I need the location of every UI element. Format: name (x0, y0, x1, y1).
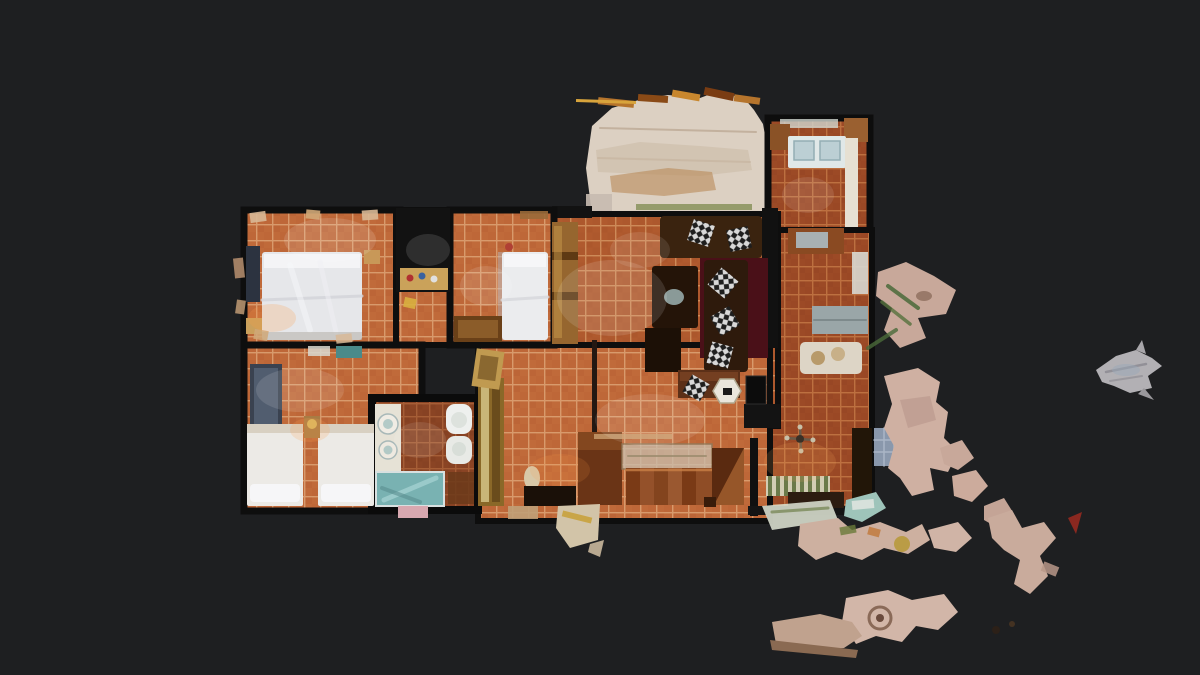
dark-speck (1009, 621, 1015, 627)
fragment-spiral-core (876, 614, 884, 622)
wood-debris (306, 209, 321, 219)
stair-step (640, 468, 654, 505)
wardrobe-panel (492, 382, 500, 502)
stair-step (654, 468, 668, 505)
kitchen-floor-glow (782, 177, 834, 213)
fragment-blue-tint (1112, 364, 1140, 376)
ceiling-light-glow (460, 266, 512, 306)
kitchen-sink-basin (820, 141, 840, 160)
door-wood (520, 211, 548, 219)
dining-counter-steel (796, 232, 828, 248)
hex-table-center (723, 388, 732, 395)
ceiling-light-glow (595, 394, 705, 446)
tv-unit (746, 376, 766, 404)
fragment-white-bit (852, 499, 875, 510)
kitchen-cabinet (770, 124, 790, 150)
stair-step (682, 468, 696, 505)
wood-debris (336, 333, 353, 344)
bath-sink-bowl (384, 446, 393, 455)
cushion (726, 226, 752, 252)
kitchen-sink-basin (794, 141, 814, 160)
fridge (852, 252, 868, 294)
fragment-gold-dot (894, 536, 910, 552)
hall-chair-seat (477, 355, 498, 381)
lamp-glow (530, 454, 590, 486)
chandelier-glass (811, 438, 816, 443)
wall-living-notch (744, 404, 780, 428)
bed-pillow (250, 484, 300, 502)
white-table (800, 342, 862, 374)
bath-door (448, 472, 474, 504)
terrace-hedge (636, 204, 752, 210)
bowl (831, 347, 845, 361)
bowl (811, 351, 825, 365)
ceiling-light-glow (406, 234, 450, 266)
bath-sink-bowl (383, 419, 393, 429)
scan-fragment (508, 506, 538, 519)
floorplan-viewer (0, 0, 1200, 675)
ceiling-light-glow (394, 422, 446, 458)
kitchen-counter (845, 138, 858, 236)
sofa (645, 328, 681, 372)
wardrobe-mirror (481, 382, 489, 502)
shelf-item (407, 275, 414, 282)
chandelier-glass (785, 436, 790, 441)
white-decor (308, 346, 330, 356)
scan-speck (233, 258, 245, 279)
stair-step (626, 468, 640, 505)
bidet-bowl (452, 442, 466, 456)
entry-cabinet (852, 428, 872, 500)
wardrobe (246, 246, 260, 302)
wall-entry (750, 438, 758, 516)
floor-item (505, 243, 513, 251)
ceiling-light-glow (610, 232, 670, 268)
coffee-plate (664, 289, 684, 305)
lamp-glow (290, 418, 330, 442)
lamp-glow (248, 304, 296, 332)
ceiling-light-glow (557, 260, 667, 336)
bed-pillow-band (504, 254, 546, 267)
ceiling-light-glow (256, 368, 344, 412)
chandelier-glass (798, 425, 803, 430)
shelf-item (431, 276, 438, 283)
chandelier-center (796, 435, 804, 443)
lamp-glow (764, 442, 836, 482)
ceiling-light-glow (284, 218, 376, 262)
fragment-shadow (916, 291, 932, 301)
rug-inner (458, 320, 498, 338)
living-top-wall (552, 206, 592, 218)
console-table (524, 486, 576, 506)
stair-step (668, 468, 682, 505)
shelf-item (419, 273, 426, 280)
teal-decor (336, 346, 362, 358)
bath-mat (398, 506, 428, 518)
toilet-seat (451, 412, 467, 428)
wood-debris (362, 209, 379, 220)
cabinet-highlight (554, 226, 562, 338)
bed-pillow (321, 484, 371, 502)
dark-speck (992, 626, 1000, 634)
newel-post (704, 497, 716, 507)
floorplan-canvas[interactable] (0, 0, 1200, 675)
